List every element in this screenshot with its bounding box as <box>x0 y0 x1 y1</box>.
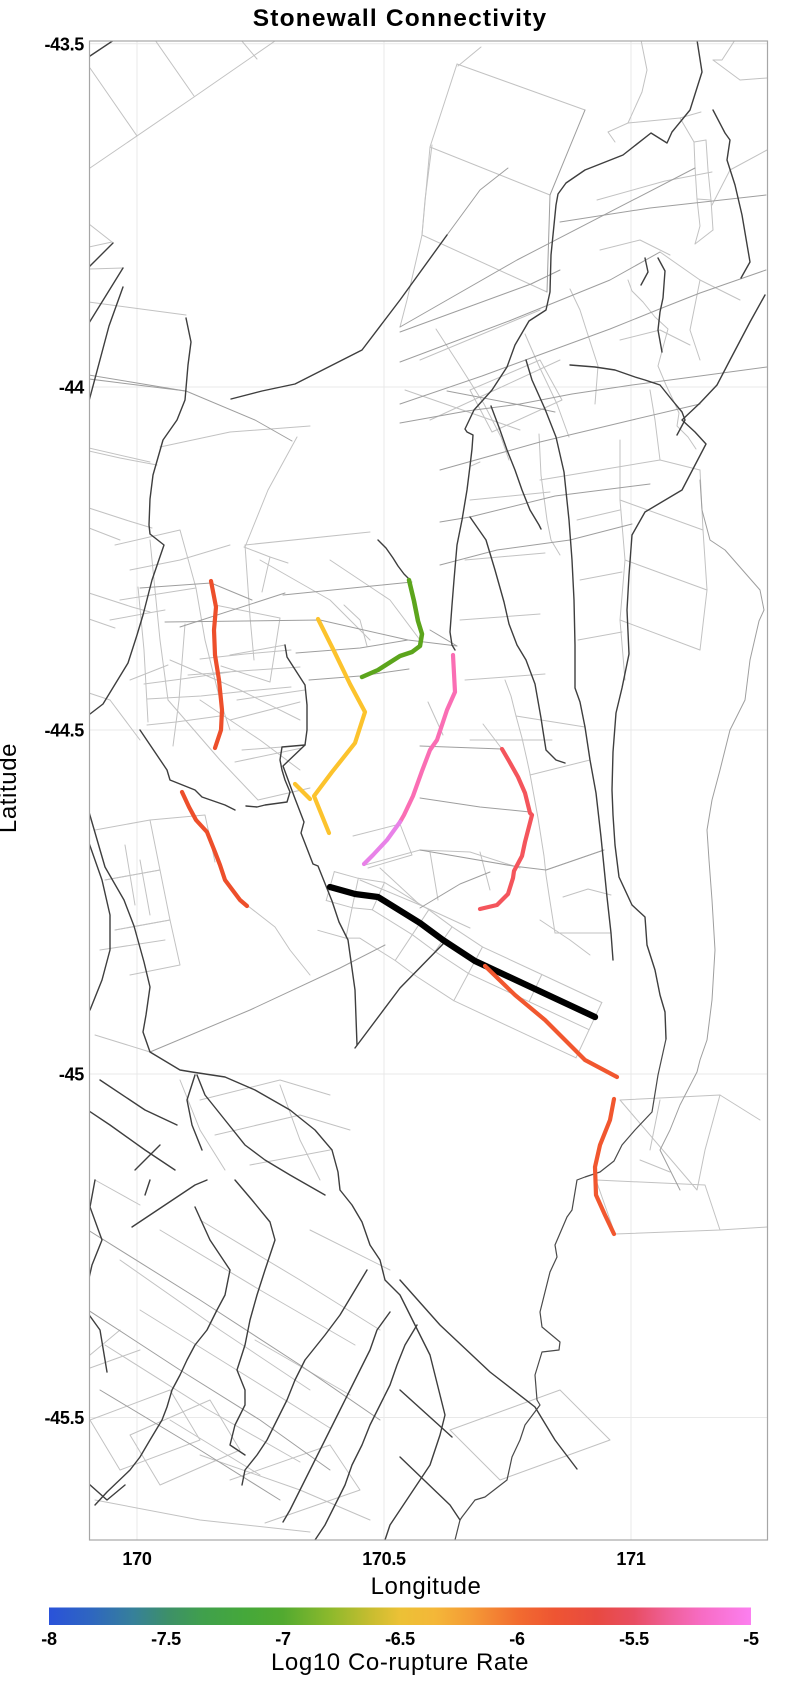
svg-text:-6: -6 <box>509 1629 525 1649</box>
svg-text:-5.5: -5.5 <box>619 1629 649 1649</box>
svg-text:-45: -45 <box>59 1065 84 1085</box>
svg-text:Stonewall Connectivity: Stonewall Connectivity <box>253 5 548 32</box>
svg-text:-7: -7 <box>275 1629 291 1649</box>
svg-text:-43.5: -43.5 <box>44 35 84 55</box>
svg-text:-44.5: -44.5 <box>44 721 84 741</box>
svg-text:Longitude: Longitude <box>371 1573 482 1600</box>
svg-text:-44: -44 <box>59 378 84 398</box>
svg-text:171: 171 <box>616 1549 645 1569</box>
svg-text:-7.5: -7.5 <box>151 1629 181 1649</box>
svg-text:-8: -8 <box>41 1629 57 1649</box>
svg-text:-6.5: -6.5 <box>385 1629 415 1649</box>
svg-text:Latitude: Latitude <box>0 743 22 833</box>
svg-text:-5: -5 <box>743 1629 759 1649</box>
svg-text:Log10 Co-rupture Rate: Log10 Co-rupture Rate <box>271 1649 529 1676</box>
svg-text:170: 170 <box>122 1549 151 1569</box>
svg-text:170.5: 170.5 <box>362 1549 406 1569</box>
svg-text:-45.5: -45.5 <box>44 1408 84 1428</box>
